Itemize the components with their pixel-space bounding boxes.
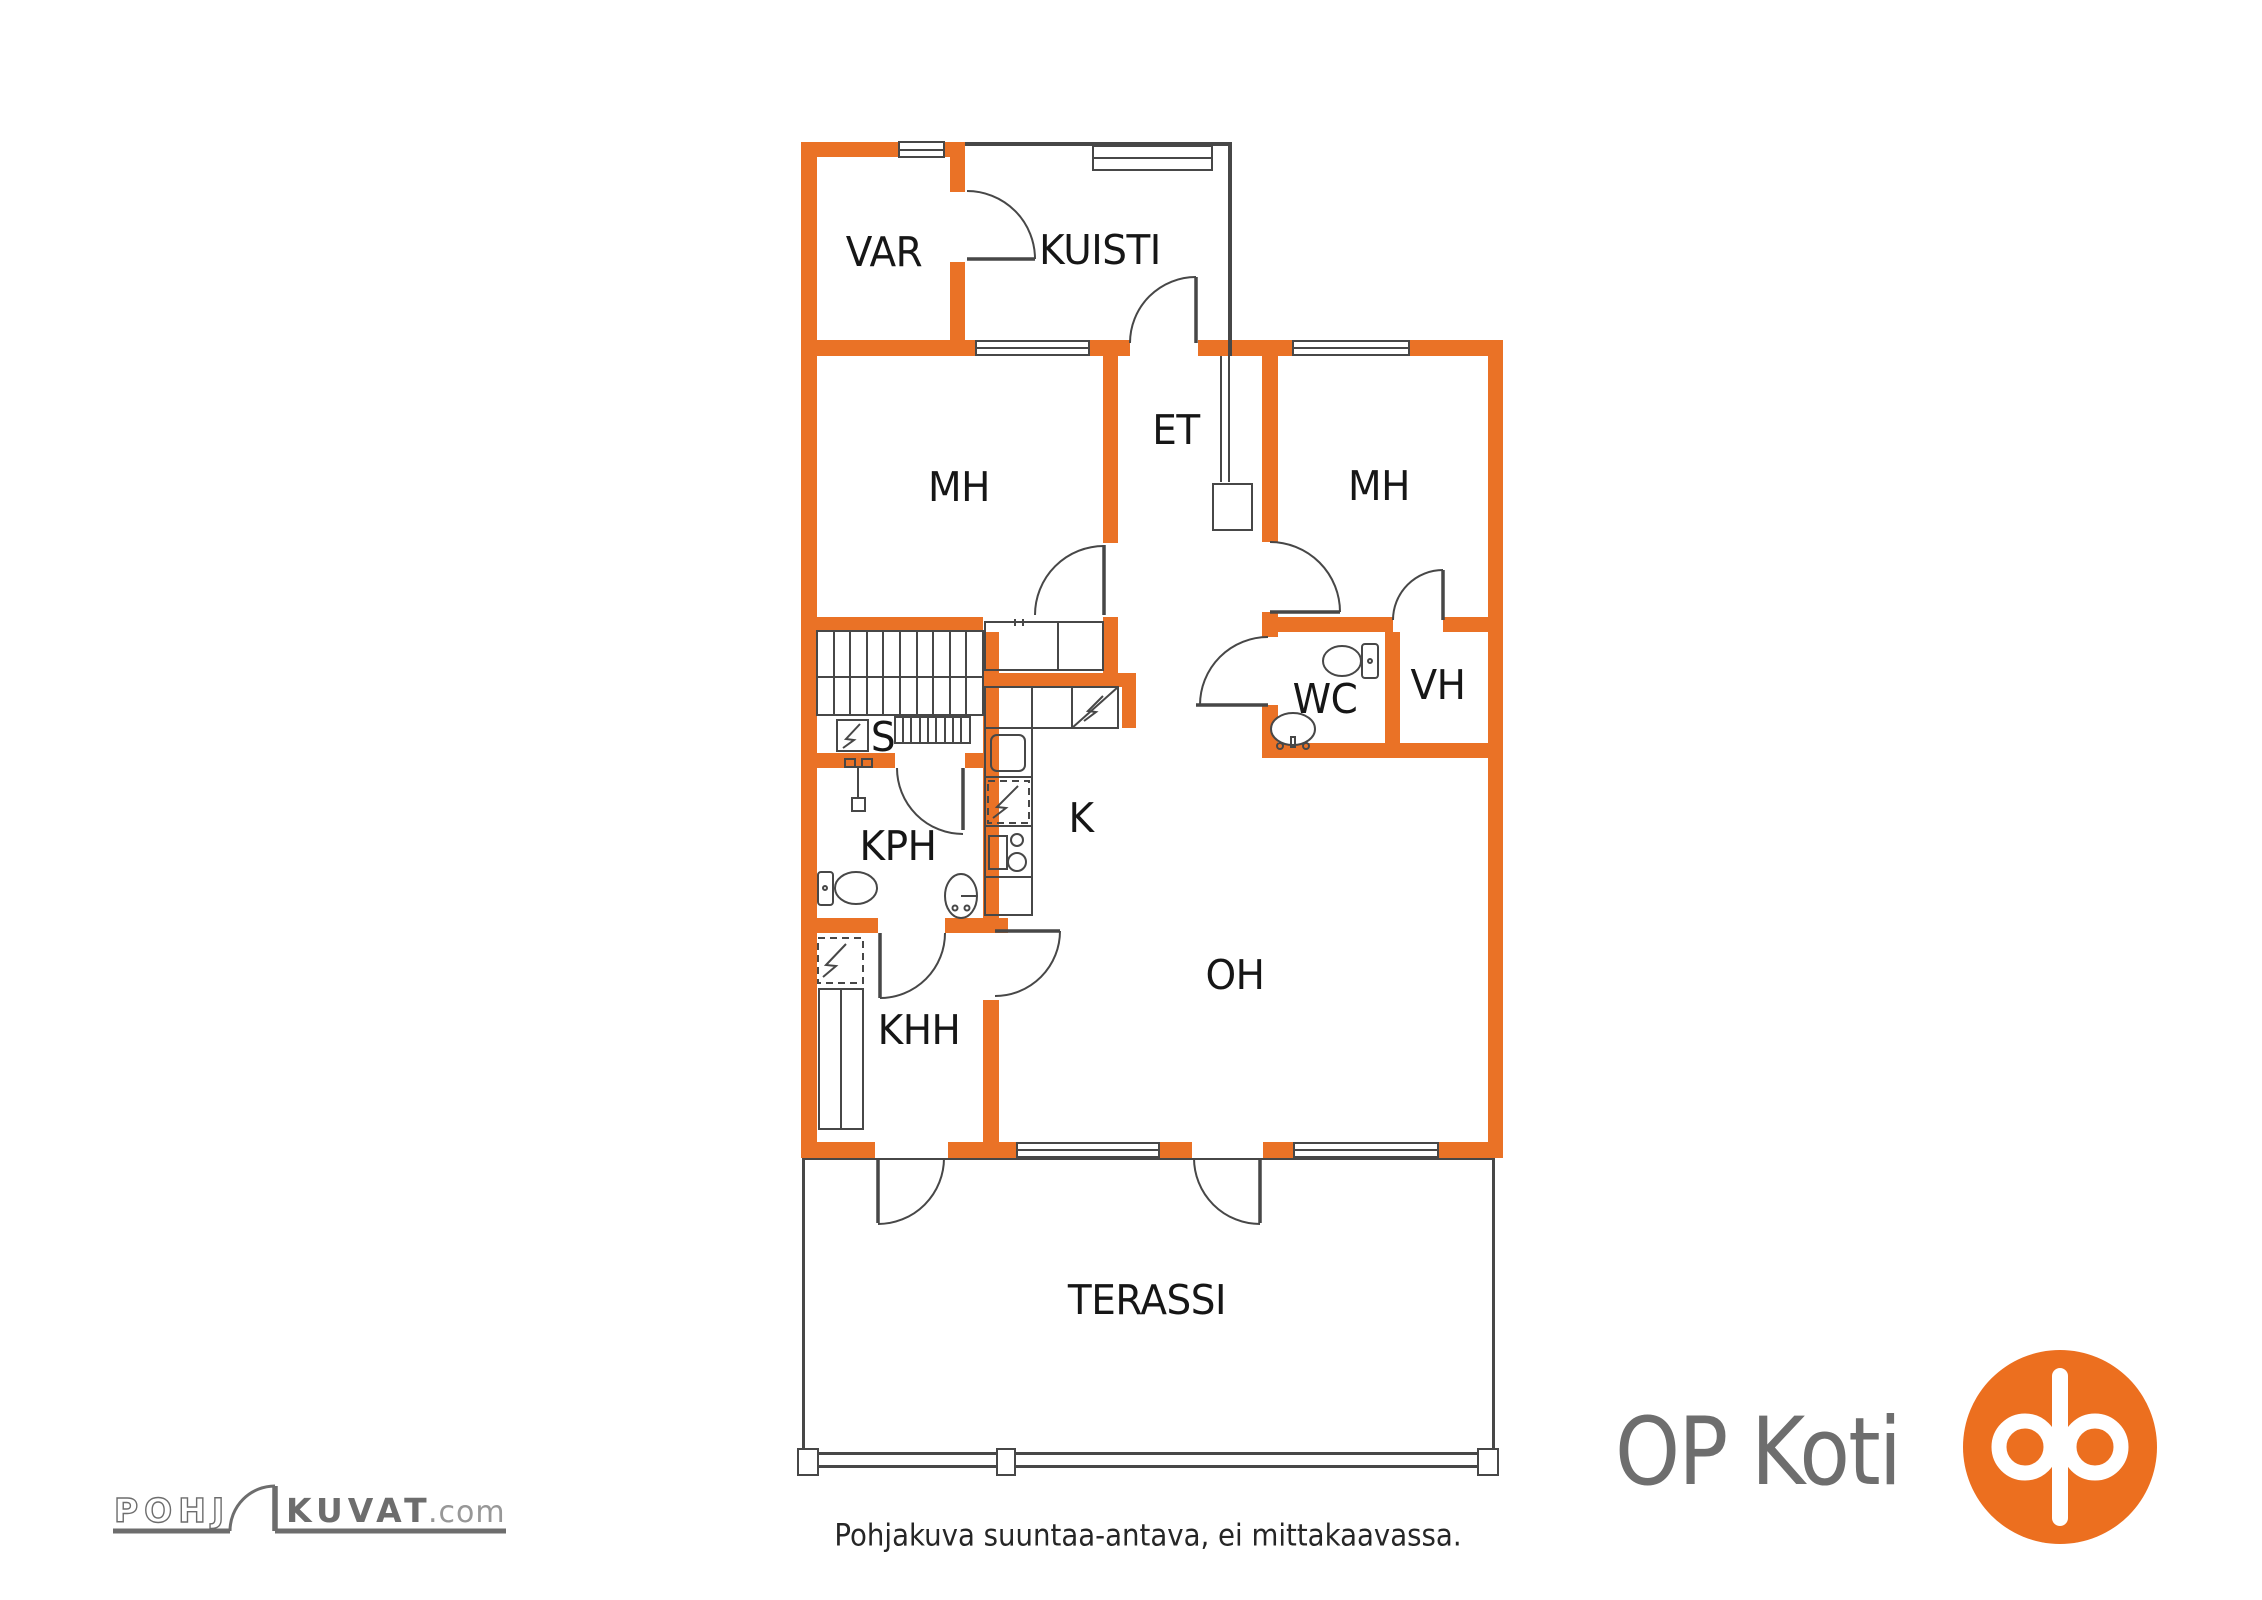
toilet-icon [1323,644,1378,678]
kitchen-counter [985,619,1118,915]
room-label-sauna: S [871,713,895,761]
dishwasher-reservation-icon [988,781,1029,823]
room-label-wc: WC [1293,675,1358,723]
floorplan-canvas: POHJ KUVAT .com VAR KUISTI MH ET MH WC V… [0,0,2262,1600]
door-swing-wc [1196,637,1268,705]
room-label-oh: OH [1205,951,1264,999]
room-label-terassi: TERASSI [1068,1276,1226,1324]
op-koti-wordmark: OP Koti [1615,1398,1900,1507]
staircase [817,631,983,743]
shower-icon [845,759,872,811]
pohjakuvat-suffix-text: .com [428,1495,506,1530]
washer-reservation-icon [818,938,863,983]
room-label-khh: KHH [878,1006,961,1054]
door-swing-entrance [1130,277,1196,343]
room-label-mh-right: MH [1348,462,1410,510]
door-swing-mh-right [1270,542,1340,612]
room-label-var: VAR [846,228,922,276]
disclaimer-text: Pohjakuva suuntaa-antava, ei mittakaavas… [834,1519,1461,1554]
toilet-icon [818,872,877,905]
room-label-kph: KPH [860,822,937,870]
pohjakuvat-outline-text: POHJ [114,1491,230,1530]
door-swing-khh-terrace [878,1158,944,1224]
pohjakuvat-solid-text: KUVAT [286,1491,432,1530]
room-label-kuisti: KUISTI [1039,226,1161,274]
pohjakuvat-logo: POHJ KUVAT .com [113,1486,506,1531]
sink-icon [945,874,977,918]
door-swing-kph-khh [880,933,945,998]
door-swing-mh-left [1035,545,1104,615]
door-swing-var-kuisti [967,191,1035,259]
room-label-kitchen: K [1068,794,1093,842]
door-swing-oh-khh [995,931,1060,996]
room-label-et: ET [1152,406,1199,454]
op-logo-icon [1963,1350,2157,1544]
room-label-vh: VH [1411,661,1466,709]
door-swing-oh-terrace [1194,1158,1260,1224]
sauna-stove-icon [837,720,868,751]
door-swing-vh [1393,570,1443,620]
room-label-mh-left: MH [928,463,990,511]
